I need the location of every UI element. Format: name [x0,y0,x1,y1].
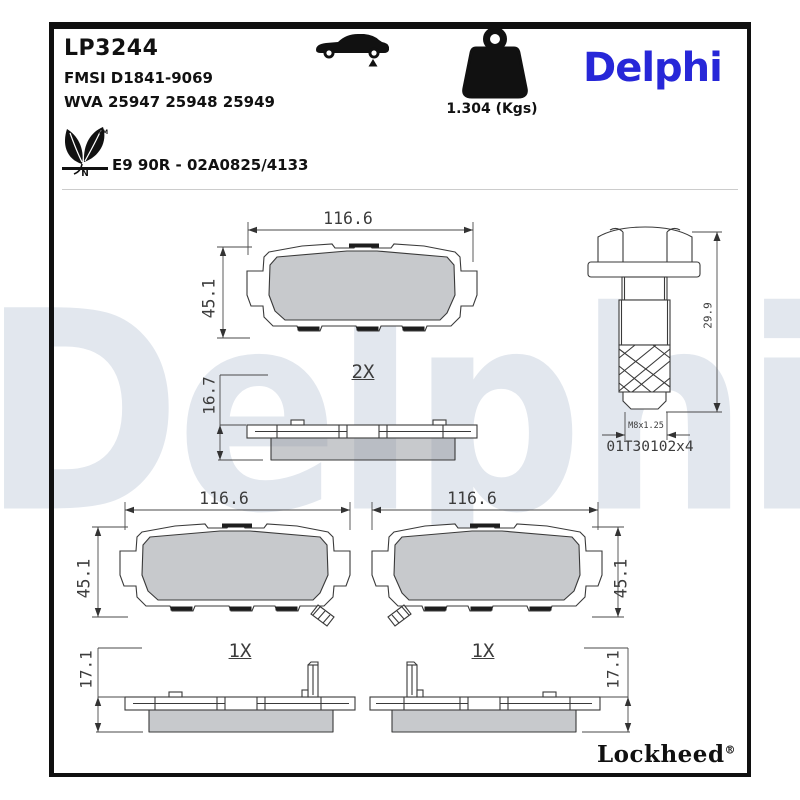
bolt-part-number: 01T30102x4 [600,439,700,455]
fmsi-reference: FMSI D1841-9069 [64,69,213,87]
pad-left-drawing [70,485,380,750]
dim-top-thickness: 16.7 [200,371,219,421]
qty-right-pad: 1X [463,640,503,662]
lockheed-logo: Lockheed® [597,741,736,768]
eco-n-label: N [70,169,100,179]
qty-left-pad: 1X [220,640,260,662]
header-divider [62,189,738,190]
dim-bolt-length: 29.9 [702,296,715,336]
weight-value: 1.304 (Kgs) [442,101,542,117]
dim-left-thickness: 17.1 [77,645,96,695]
pad-side-top-drawing [190,360,490,470]
delphi-logo: Delphi [583,45,722,91]
part-number: LP3244 [64,36,158,61]
dim-bolt-thread: M8x1.25 [621,421,671,431]
weight-icon [455,26,535,104]
dim-right-height: 45.1 [612,554,631,604]
dim-left-width: 116.6 [194,489,254,508]
eco-tm-mark: TM [98,129,108,136]
ece-approval-number: E9 90R - 02A0825/4133 [112,156,308,174]
dim-top-height: 45.1 [200,274,219,324]
lockheed-wordmark: Lockheed [597,741,725,768]
dim-right-width: 116.6 [442,489,502,508]
registered-mark: ® [725,743,737,756]
wva-reference: WVA 25947 25948 25949 [64,93,275,111]
pad-right-drawing [360,485,670,750]
dim-left-height: 45.1 [75,554,94,604]
car-rear-axle-icon [312,28,392,70]
qty-top-pair: 2X [343,361,383,383]
dim-top-width: 116.6 [318,209,378,228]
dim-right-thickness: 17.1 [604,645,623,695]
